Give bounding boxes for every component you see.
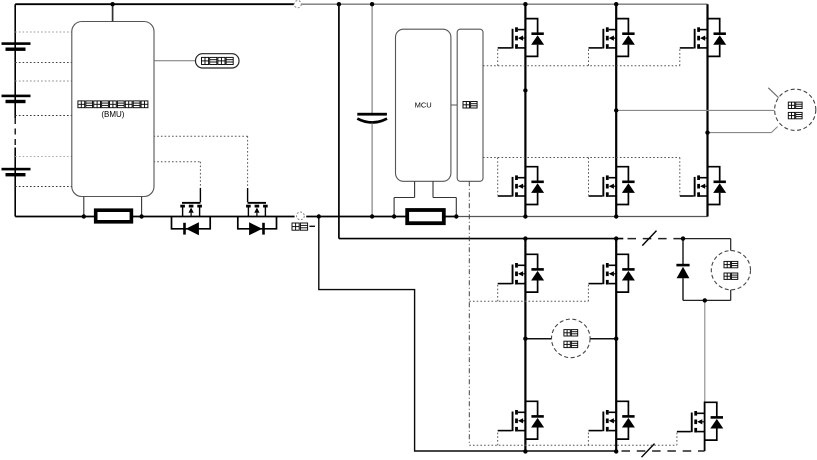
svg-text:MCU: MCU <box>415 101 432 110</box>
svg-text:(BMU): (BMU) <box>101 110 124 119</box>
